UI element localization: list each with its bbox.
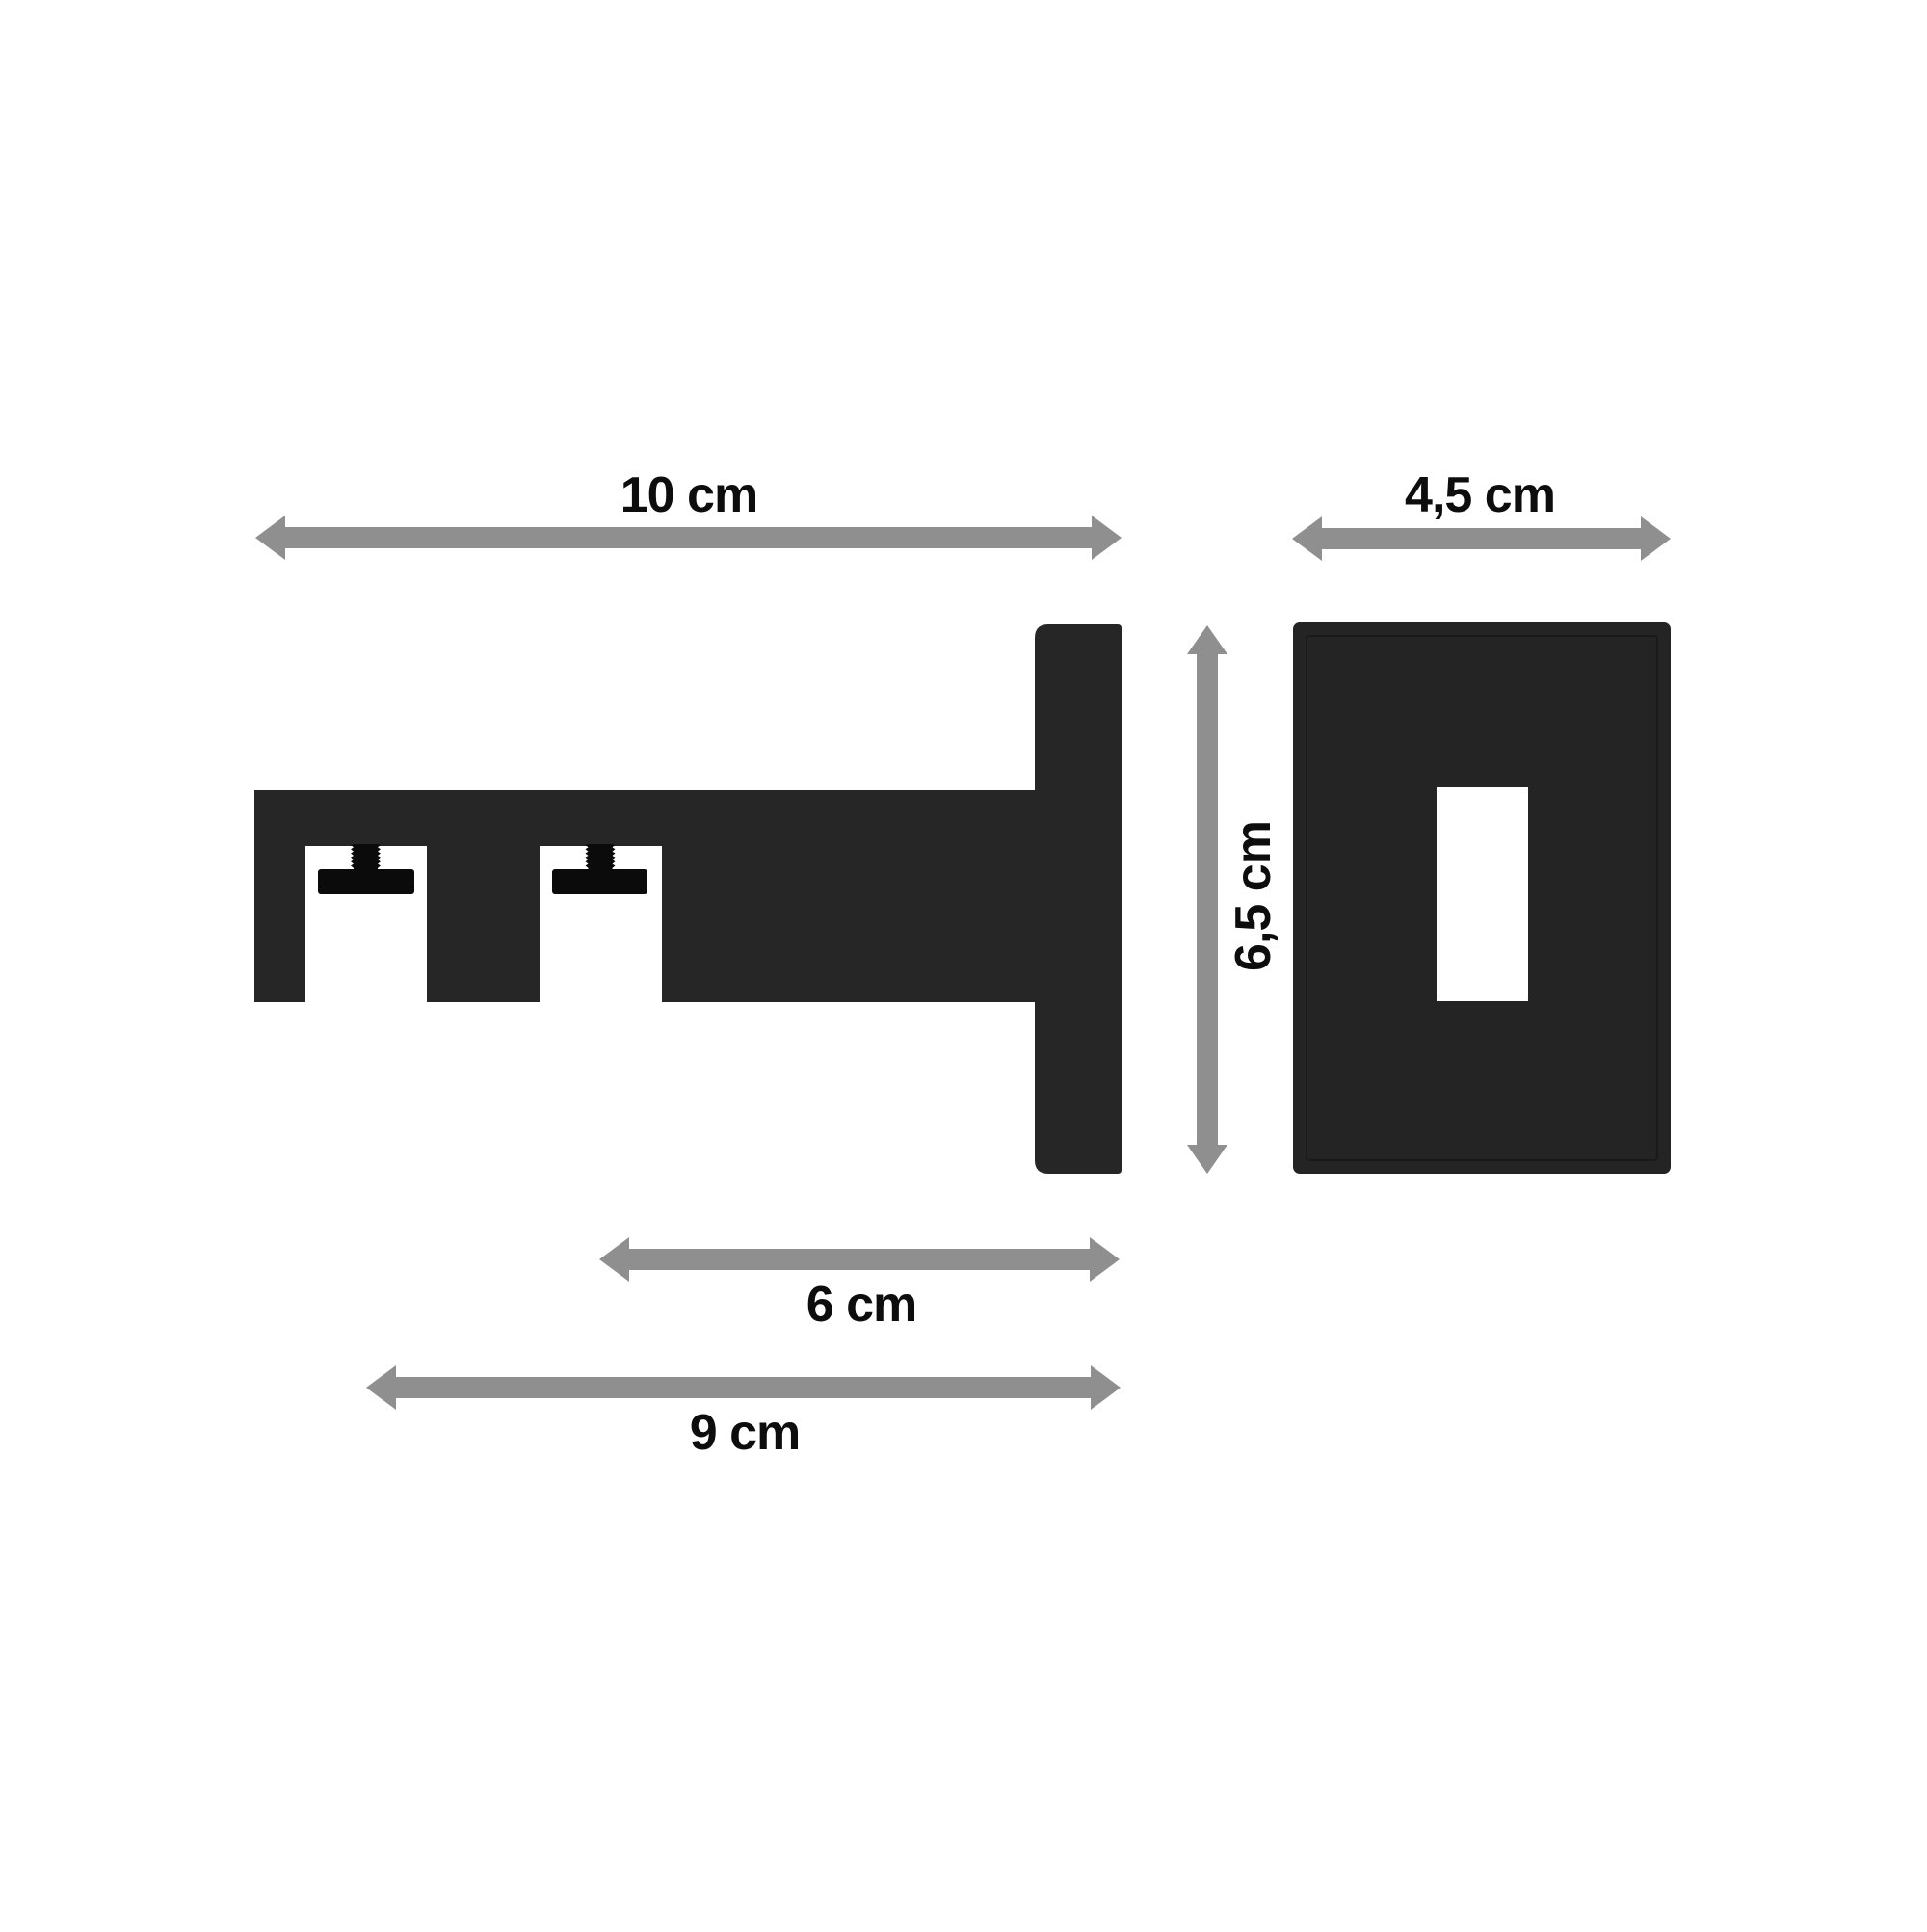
- svg-text:10 cm: 10 cm: [620, 467, 757, 523]
- svg-text:6 cm: 6 cm: [806, 1277, 917, 1333]
- svg-text:6,5 cm: 6,5 cm: [1226, 821, 1281, 971]
- svg-text:4,5 cm: 4,5 cm: [1405, 467, 1555, 523]
- svg-text:9 cm: 9 cm: [690, 1405, 801, 1461]
